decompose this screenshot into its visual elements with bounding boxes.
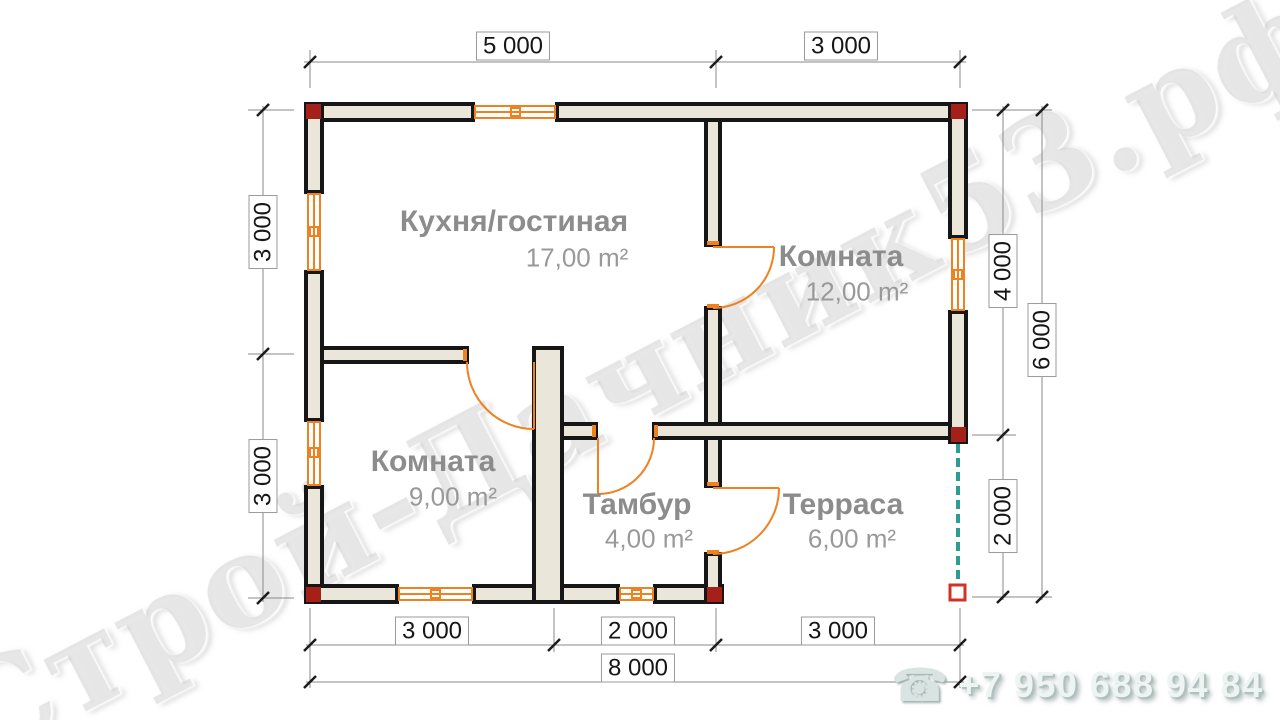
room-area-room9: 9,00 m² [409, 482, 497, 513]
corner-mark-right-wall-end [951, 427, 966, 442]
wall-interior-room9-vestibule [534, 348, 562, 602]
wall-interior-vestibule-terrace-upper [706, 438, 720, 486]
dim-label-bottom-3000-left: 3 000 [395, 617, 469, 646]
window-left-upper [308, 194, 320, 270]
wall-top-right-segment [557, 104, 966, 120]
phone-number: +7 950 688 94 84 [958, 664, 1263, 706]
corner-mark-bottom-middle [707, 587, 722, 602]
dim-label-top-3000: 3 000 [804, 32, 878, 61]
wall-interior-kitchen-room12-lower [706, 308, 720, 424]
window-right [952, 239, 964, 310]
corner-mark-bottom-left [306, 587, 321, 602]
room-label-vestibule: Тамбур [583, 488, 692, 522]
corner-mark-top-left [306, 104, 321, 119]
window-left-lower [308, 422, 320, 485]
window-bottom-vestibule [620, 588, 653, 600]
wall-interior-room12-terrace [654, 424, 950, 438]
dim-label-bottom-2000: 2 000 [601, 617, 675, 646]
dim-label-left-3000-upper: 3 000 [249, 195, 278, 269]
door-vestibule-terrace [713, 488, 779, 554]
room-area-kitchen: 17,00 m² [526, 243, 629, 274]
corner-mark-top-right [951, 104, 966, 119]
window-bottom-room9 [399, 588, 472, 600]
wall-right-lower-segment [950, 312, 966, 442]
terrace-post [950, 585, 965, 600]
dim-label-bottom-3000-right: 3 000 [801, 617, 875, 646]
window-top [475, 106, 555, 118]
room-label-terrace: Терраса [783, 488, 904, 522]
room-area-terrace: 6,00 m² [808, 524, 896, 555]
telephone-icon: ☎ [891, 662, 948, 708]
room-area-room12: 12,00 m² [806, 277, 909, 308]
wall-top-left-segment [306, 104, 473, 120]
dim-label-right-4000: 4 000 [989, 234, 1018, 308]
floor-plan-canvas: Строй-Дачник53.рф [0, 0, 1280, 720]
dim-label-right-2000: 2 000 [989, 479, 1018, 553]
room-label-room9: Комната [371, 445, 496, 479]
room-area-vestibule: 4,00 m² [605, 524, 693, 555]
door-room9 [467, 362, 534, 429]
wall-interior-vestibule-top-stub [562, 424, 596, 438]
plan-linework [0, 0, 1280, 720]
room-label-room12: Комната [779, 240, 904, 274]
phone-contact: ☎ +7 950 688 94 84 [891, 662, 1264, 708]
dim-label-right-6000: 6 000 [1028, 303, 1057, 377]
wall-right-upper-segment [950, 104, 966, 237]
wall-interior-kitchen-room12-upper [706, 120, 720, 245]
dim-label-bottom-8000: 8 000 [601, 654, 675, 683]
wall-left-middle-segment [306, 272, 322, 420]
door-vestibule-kitchen [598, 438, 654, 494]
wall-interior-kitchen-room9 [322, 348, 467, 362]
door-room12 [713, 247, 774, 308]
room-label-kitchen: Кухня/гостиная [400, 205, 628, 239]
dim-label-top-5000: 5 000 [476, 32, 550, 61]
dim-label-left-3000-lower: 3 000 [249, 439, 278, 513]
